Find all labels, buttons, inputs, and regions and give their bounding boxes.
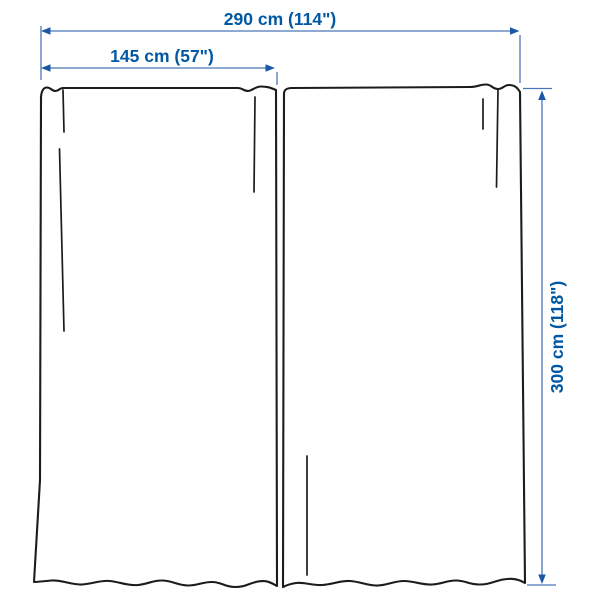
dimension-arrowheads: [41, 27, 546, 584]
right-panel-fold-line: [497, 90, 499, 187]
curtain-outlines: [34, 85, 525, 588]
arrow-left-icon: [41, 27, 51, 35]
left-panel-fold-line: [63, 90, 64, 132]
total-width-label: 290 cm (114"): [224, 9, 336, 29]
arrow-up-icon: [538, 91, 546, 101]
arrow-right-icon: [266, 64, 276, 72]
left-panel-fold-line: [60, 149, 65, 331]
left-curtain-panel-outline: [34, 87, 277, 588]
dimension-labels: 290 cm (114") 145 cm (57") 300 cm (118"): [110, 9, 567, 393]
height-label: 300 cm (118"): [547, 281, 567, 393]
product-dimension-diagram: 290 cm (114") 145 cm (57") 300 cm (118"): [0, 0, 600, 600]
arrow-right-icon: [510, 27, 520, 35]
left-panel-fold-line: [254, 97, 255, 192]
fabric-fold-lines: [60, 90, 499, 575]
panel-width-dimension: [48, 68, 277, 85]
dimension-lines: [41, 26, 556, 585]
right-curtain-panel-outline: [283, 85, 525, 588]
arrow-down-icon: [538, 575, 546, 585]
panel-width-label: 145 cm (57"): [110, 46, 214, 66]
curtains-dimension-drawing: 290 cm (114") 145 cm (57") 300 cm (118"): [0, 0, 600, 600]
arrow-left-icon: [41, 64, 51, 72]
